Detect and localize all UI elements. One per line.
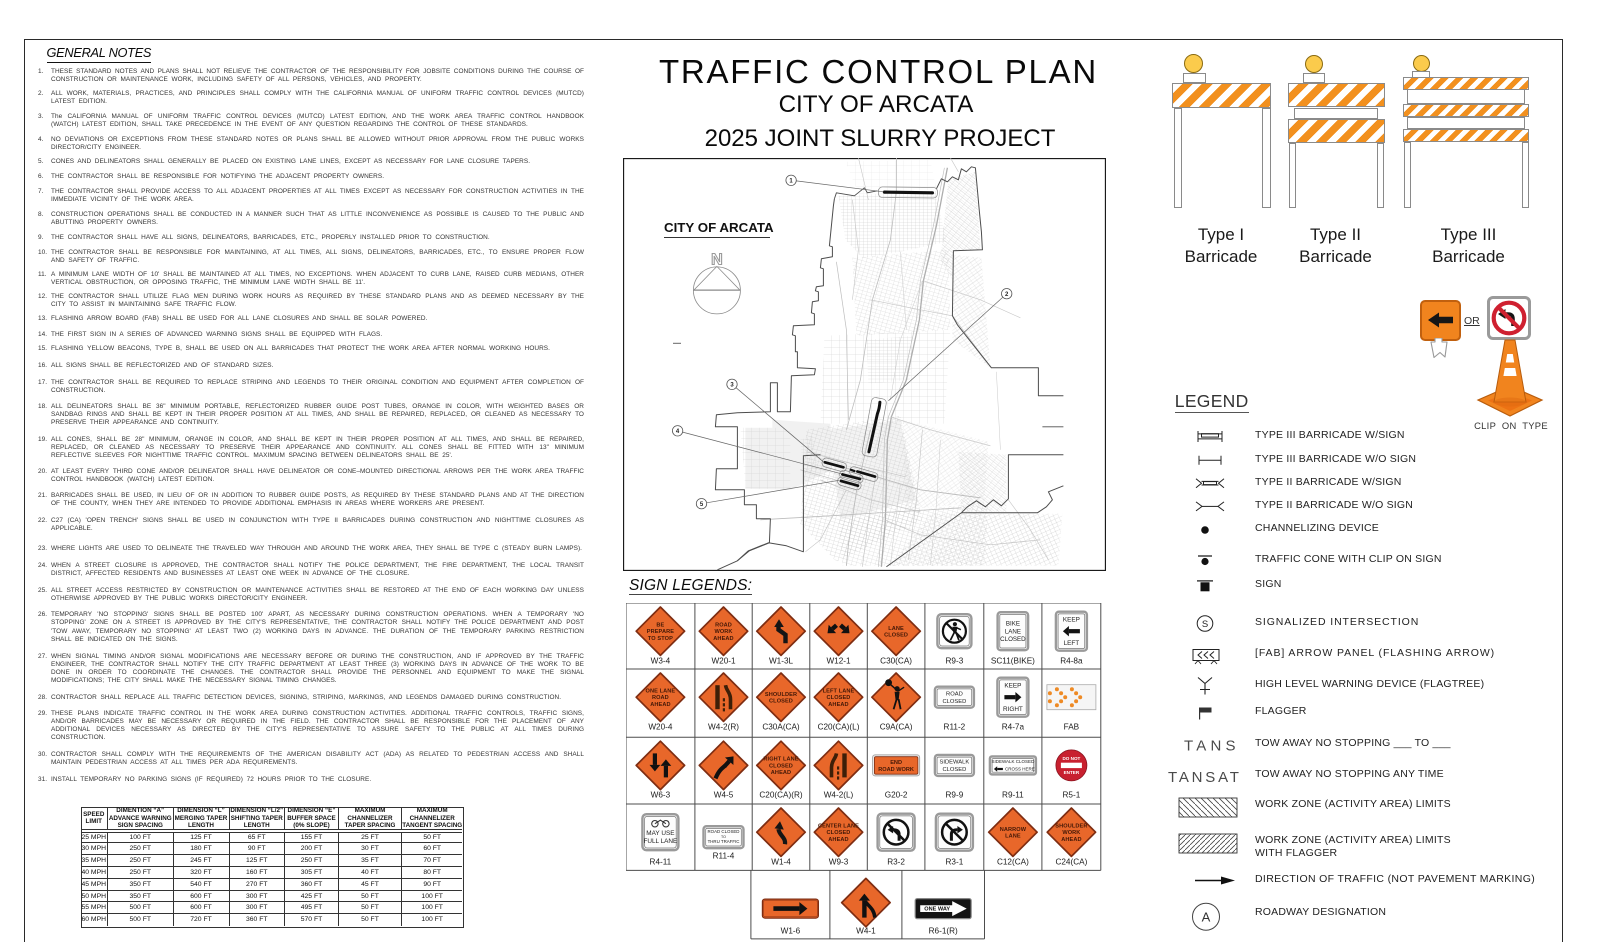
- svg-text:FAB: FAB: [1064, 723, 1080, 732]
- svg-text:CLOSED: CLOSED: [1000, 636, 1026, 643]
- svg-text:AHEAD: AHEAD: [650, 702, 670, 708]
- svg-text:RIGHT: RIGHT: [1003, 706, 1023, 713]
- svg-text:S: S: [1202, 619, 1208, 630]
- svg-text:LANE: LANE: [1005, 628, 1021, 635]
- svg-text:W12-1: W12-1: [827, 657, 852, 666]
- svg-text:G20-2: G20-2: [885, 791, 908, 800]
- svg-text:W20-4: W20-4: [648, 723, 673, 732]
- svg-text:CENTER LANE: CENTER LANE: [818, 823, 859, 829]
- svg-text:SC11(BIKE): SC11(BIKE): [991, 657, 1035, 666]
- svg-text:CLOSED: CLOSED: [769, 699, 793, 705]
- svg-text:SIDEWALK: SIDEWALK: [940, 760, 970, 766]
- svg-text:LEFT: LEFT: [1064, 640, 1080, 647]
- svg-text:R3-1: R3-1: [946, 858, 964, 867]
- svg-text:BE: BE: [657, 622, 665, 628]
- svg-text:AHEAD: AHEAD: [828, 702, 848, 708]
- svg-text:W1-6: W1-6: [781, 926, 801, 935]
- svg-text:WORK: WORK: [715, 629, 733, 635]
- svg-text:AHEAD: AHEAD: [771, 770, 791, 776]
- svg-text:LANE: LANE: [1005, 834, 1021, 840]
- svg-text:CITY OF ARCATA: CITY OF ARCATA: [664, 220, 774, 235]
- svg-text:ROAD: ROAD: [946, 692, 963, 698]
- svg-text:C24(CA): C24(CA): [1056, 858, 1088, 867]
- svg-text:AHEAD: AHEAD: [828, 837, 848, 843]
- svg-text:R11-2: R11-2: [944, 723, 966, 732]
- svg-text:TANS: TANS: [1184, 738, 1240, 755]
- svg-text:CLOSED: CLOSED: [769, 763, 793, 769]
- svg-text:W4-2(R): W4-2(R): [708, 723, 739, 732]
- svg-text:R5-1: R5-1: [1063, 791, 1081, 800]
- svg-text:ROAD CLOSED: ROAD CLOSED: [708, 829, 740, 834]
- svg-text:CLOSED: CLOSED: [827, 695, 851, 701]
- svg-text:W1-4: W1-4: [771, 858, 791, 867]
- svg-text:R9-9: R9-9: [946, 791, 964, 800]
- svg-text:SHOULDER: SHOULDER: [1055, 823, 1087, 829]
- svg-text:R9-11: R9-11: [1002, 791, 1024, 800]
- svg-text:RIGHT LANE: RIGHT LANE: [764, 757, 799, 763]
- svg-text:WORK: WORK: [1062, 830, 1080, 836]
- svg-text:CLOSED: CLOSED: [827, 830, 851, 836]
- svg-text:W3-4: W3-4: [651, 657, 671, 666]
- svg-text:BIKE: BIKE: [1006, 621, 1020, 628]
- svg-text:R11-4: R11-4: [713, 852, 735, 861]
- svg-text:C20(CA)(R): C20(CA)(R): [759, 791, 802, 800]
- svg-text:R6-1(R): R6-1(R): [929, 926, 958, 935]
- svg-text:CROSS HERE: CROSS HERE: [1005, 767, 1035, 772]
- svg-text:SIDEWALK CLOSED: SIDEWALK CLOSED: [992, 759, 1036, 764]
- svg-text:W20-1: W20-1: [712, 657, 737, 666]
- svg-text:W9-3: W9-3: [829, 858, 849, 867]
- svg-text:W4-1: W4-1: [856, 926, 876, 935]
- svg-text:C20(CA)(L): C20(CA)(L): [818, 723, 860, 732]
- svg-text:AHEAD: AHEAD: [1061, 837, 1081, 843]
- svg-text:C30A(CA): C30A(CA): [762, 723, 800, 732]
- svg-text:CLOSED: CLOSED: [943, 699, 967, 705]
- svg-text:W6-3: W6-3: [651, 791, 671, 800]
- svg-text:ROAD: ROAD: [715, 622, 732, 628]
- svg-text:R3-2: R3-2: [887, 858, 905, 867]
- svg-text:R4-8a: R4-8a: [1060, 657, 1083, 666]
- svg-text:AHEAD: AHEAD: [713, 636, 733, 642]
- svg-text:ONE LANE: ONE LANE: [646, 688, 676, 694]
- svg-text:CLOSED: CLOSED: [943, 767, 967, 773]
- svg-text:ONE WAY: ONE WAY: [924, 907, 950, 913]
- svg-text:SHOULDER: SHOULDER: [765, 692, 797, 698]
- svg-text:R4-7a: R4-7a: [1002, 723, 1025, 732]
- svg-text:W4-2(L): W4-2(L): [824, 791, 854, 800]
- svg-text:FULL LANE: FULL LANE: [644, 838, 678, 845]
- svg-text:R9-3: R9-3: [946, 657, 964, 666]
- svg-text:CLOSED: CLOSED: [884, 633, 908, 639]
- svg-text:PREPARE: PREPARE: [647, 629, 674, 635]
- svg-text:C30(CA): C30(CA): [880, 657, 912, 666]
- svg-text:R4-11: R4-11: [650, 858, 672, 867]
- svg-text:ENTER: ENTER: [1064, 770, 1080, 775]
- svg-text:END: END: [890, 760, 902, 766]
- svg-text:W4-5: W4-5: [714, 791, 734, 800]
- svg-text:C12(CA): C12(CA): [997, 858, 1029, 867]
- svg-text:A: A: [1202, 909, 1211, 924]
- svg-text:KEEP: KEEP: [1004, 683, 1021, 690]
- svg-text:LEFT LANE: LEFT LANE: [823, 688, 855, 694]
- svg-text:ROAD: ROAD: [652, 695, 669, 701]
- svg-text:TO STOP: TO STOP: [648, 636, 673, 642]
- svg-text:C9A(CA): C9A(CA): [880, 723, 913, 732]
- svg-text:MAY USE: MAY USE: [646, 830, 674, 837]
- svg-text:LANE: LANE: [888, 626, 904, 632]
- svg-text:W1-3L: W1-3L: [769, 657, 794, 666]
- svg-text:TANSAT: TANSAT: [1168, 769, 1242, 786]
- svg-text:N: N: [711, 252, 723, 269]
- svg-text:DO NOT: DO NOT: [1063, 756, 1081, 761]
- svg-text:NARROW: NARROW: [1000, 827, 1027, 833]
- svg-text:ROAD WORK: ROAD WORK: [878, 767, 914, 773]
- svg-text:KEEP: KEEP: [1063, 617, 1080, 624]
- svg-text:THRU TRAFFIC: THRU TRAFFIC: [708, 839, 740, 844]
